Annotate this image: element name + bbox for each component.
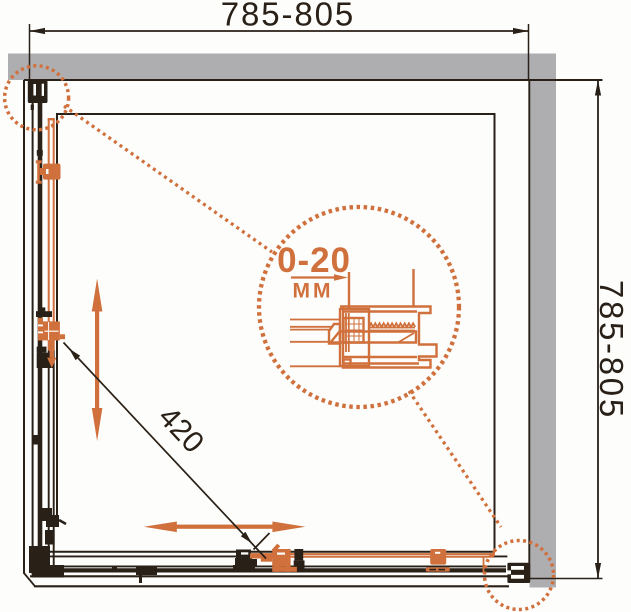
svg-text:785-805: 785-805: [593, 280, 630, 420]
svg-text:0-20: 0-20: [277, 241, 351, 280]
svg-text:785-805: 785-805: [221, 0, 355, 33]
svg-text:ММ: ММ: [293, 280, 334, 303]
